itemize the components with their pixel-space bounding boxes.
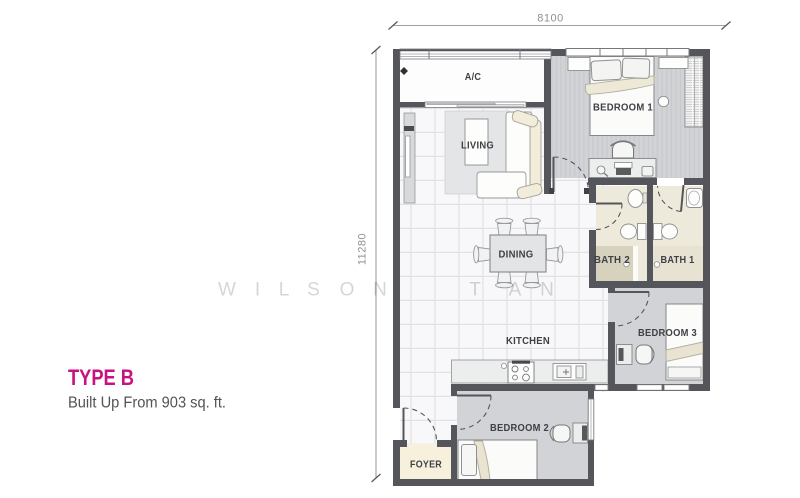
svg-text:Built Up From 903 sq. ft.: Built Up From 903 sq. ft. bbox=[68, 395, 226, 412]
svg-text:TYPE B: TYPE B bbox=[68, 365, 134, 390]
svg-text:BEDROOM 3: BEDROOM 3 bbox=[638, 327, 697, 339]
svg-text:BATH 2: BATH 2 bbox=[594, 255, 630, 266]
svg-text:LIVING: LIVING bbox=[461, 140, 494, 152]
svg-text:T: T bbox=[469, 280, 481, 301]
svg-text:S: S bbox=[307, 280, 320, 301]
svg-text:FOYER: FOYER bbox=[410, 459, 442, 471]
svg-text:BEDROOM 1: BEDROOM 1 bbox=[593, 102, 653, 114]
svg-text:N: N bbox=[540, 280, 554, 301]
svg-text:W: W bbox=[218, 280, 236, 301]
svg-text:DINING: DINING bbox=[499, 249, 534, 261]
svg-text:A: A bbox=[509, 280, 522, 301]
svg-text:I: I bbox=[255, 280, 260, 301]
svg-text:BATH 1: BATH 1 bbox=[661, 255, 695, 266]
svg-text:8100: 8100 bbox=[537, 13, 563, 25]
svg-text:O: O bbox=[340, 280, 355, 301]
svg-text:BEDROOM 2: BEDROOM 2 bbox=[490, 422, 549, 434]
svg-text:L: L bbox=[279, 280, 290, 301]
svg-text:KITCHEN: KITCHEN bbox=[506, 335, 550, 347]
svg-text:A/C: A/C bbox=[465, 72, 482, 83]
svg-text:11280: 11280 bbox=[357, 233, 369, 265]
svg-text:N: N bbox=[373, 280, 387, 301]
